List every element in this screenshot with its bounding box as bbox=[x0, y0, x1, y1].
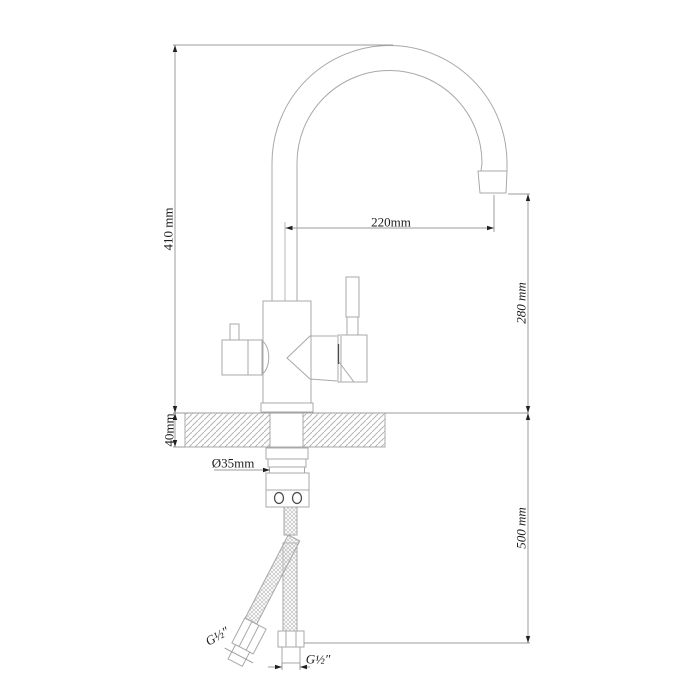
base-flange bbox=[261, 403, 313, 412]
dim-label-spout-height: 280 mm bbox=[515, 282, 528, 324]
mounting-shank bbox=[270, 412, 303, 448]
arrow-280-top bbox=[526, 194, 530, 201]
dim-label-total-height: 410 mm bbox=[162, 208, 175, 251]
bottom-thread-ext-lines bbox=[282, 663, 300, 670]
dim-label-spout-reach: 220mm bbox=[371, 216, 411, 229]
right-port-cone bbox=[287, 336, 337, 381]
arrow-500-top bbox=[526, 413, 530, 420]
faucet-technical-drawing: 410 mm 40mm 220mm 280 mm 500 mm Ø35mm G½… bbox=[0, 0, 700, 700]
lock-ring bbox=[270, 467, 305, 473]
body-column bbox=[263, 301, 311, 403]
left-handle-collar bbox=[248, 340, 262, 375]
washer-ring bbox=[268, 459, 306, 467]
spout-inner-curve bbox=[297, 71, 482, 302]
arrow-410-top bbox=[173, 45, 177, 52]
arrow-280-bottom bbox=[526, 406, 530, 413]
dim-label-deck-thickness: 40mm bbox=[163, 413, 176, 446]
arrow-410-bottom bbox=[173, 406, 177, 413]
arrow-220-right bbox=[487, 226, 494, 230]
arrow-g12-left bbox=[275, 665, 282, 669]
arrow-500-bottom bbox=[526, 636, 530, 643]
valve-port-right bbox=[293, 493, 302, 504]
bottom-thread-tip bbox=[282, 647, 300, 663]
under-deck-fittings bbox=[266, 448, 309, 507]
dim-label-shank-diameter: Ø35mm bbox=[212, 457, 255, 470]
left-handle bbox=[222, 324, 269, 375]
dim-label-hose-drop: 500 mm bbox=[515, 507, 528, 549]
left-hose-connector bbox=[225, 618, 266, 666]
straight-hose-upper bbox=[284, 507, 297, 535]
dim-label-bottom-thread: G½″ bbox=[306, 653, 331, 666]
mounting-nut bbox=[266, 448, 308, 459]
deck-hatch-right bbox=[303, 413, 385, 447]
arrow-220-left bbox=[286, 226, 293, 230]
spout-outer-curve bbox=[272, 46, 507, 301]
counter-deck bbox=[185, 412, 385, 448]
supply-hoses bbox=[245, 507, 300, 632]
right-lever-lower bbox=[347, 317, 358, 335]
deck-hatch-left bbox=[185, 413, 270, 447]
aerator-nozzle bbox=[478, 171, 507, 193]
right-lever-upper bbox=[346, 277, 359, 317]
line-art-layer bbox=[0, 0, 700, 700]
left-handle-stem bbox=[230, 324, 239, 340]
valve-port-left bbox=[275, 493, 284, 504]
dimension-arrowheads bbox=[173, 45, 530, 669]
bottom-hex-nut bbox=[278, 631, 304, 647]
right-handle-body bbox=[338, 335, 367, 382]
bottom-hose-connector bbox=[268, 631, 310, 670]
left-handle-body bbox=[222, 340, 248, 375]
dimension-lines bbox=[173, 45, 530, 643]
right-handle bbox=[287, 277, 367, 382]
arrow-shank-leader bbox=[263, 468, 270, 472]
gooseneck-spout bbox=[272, 46, 507, 301]
